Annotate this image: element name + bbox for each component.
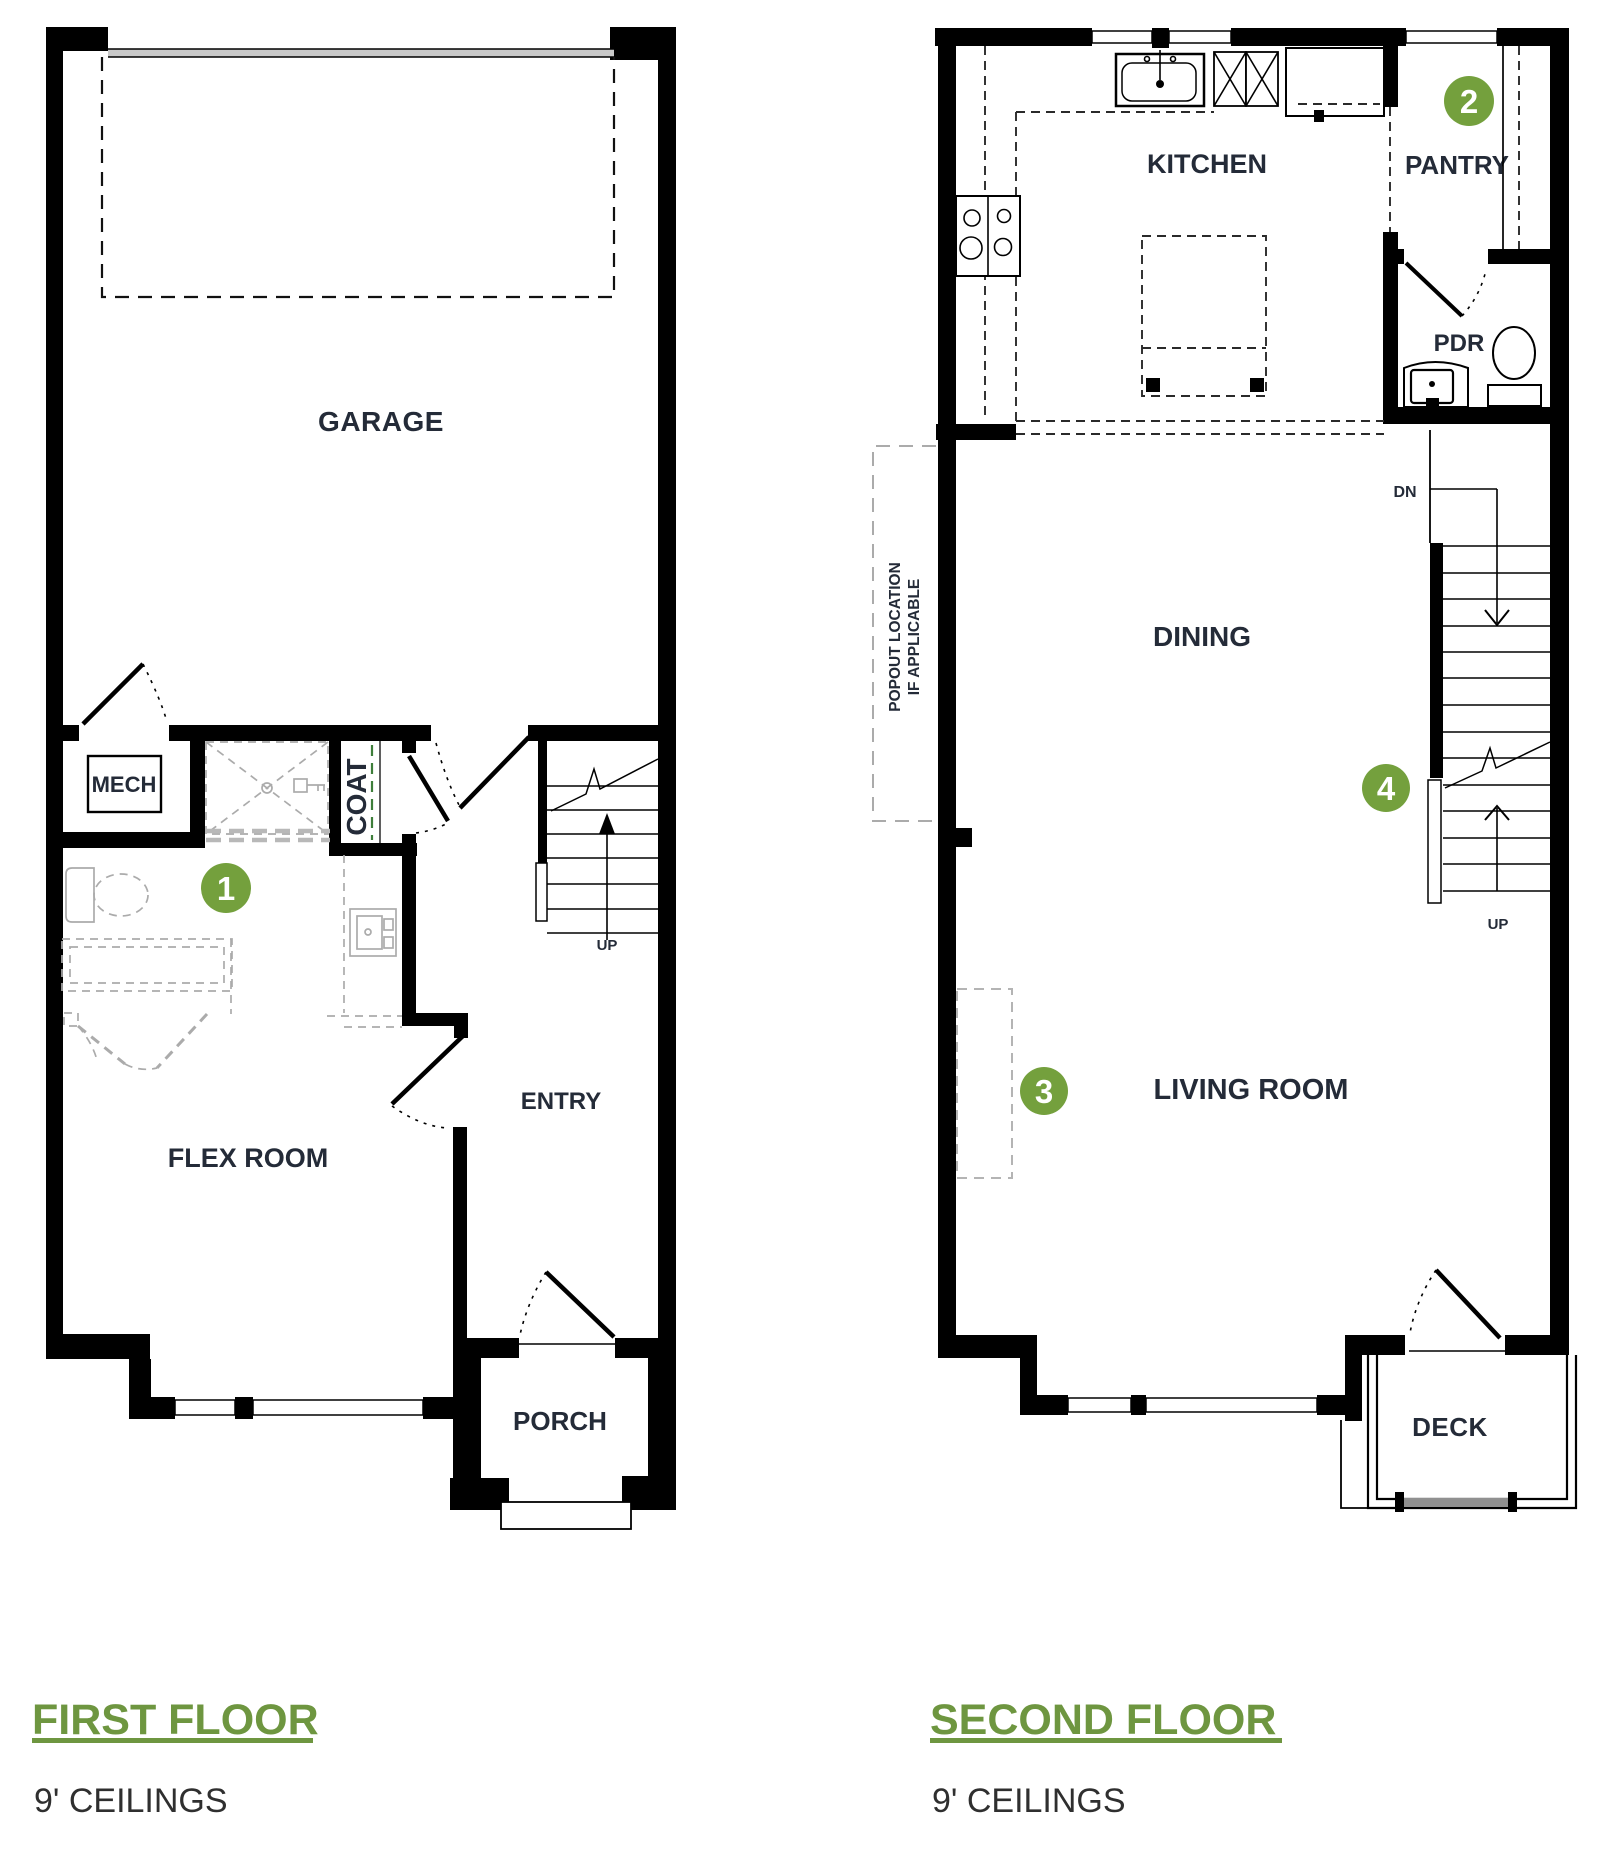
svg-text:UP: UP	[1488, 916, 1509, 933]
svg-text:PORCH: PORCH	[513, 1406, 607, 1436]
svg-text:PANTRY: PANTRY	[1405, 150, 1509, 180]
svg-text:FIRST FLOOR: FIRST FLOOR	[32, 1696, 319, 1744]
svg-text:2: 2	[1460, 83, 1478, 120]
svg-text:FLEX ROOM: FLEX ROOM	[168, 1143, 329, 1173]
svg-text:DN: DN	[1393, 484, 1416, 501]
svg-text:UP: UP	[597, 937, 618, 954]
svg-text:SECOND FLOOR: SECOND FLOOR	[930, 1696, 1276, 1744]
svg-text:PDR: PDR	[1434, 330, 1485, 357]
svg-text:POPOUT LOCATION: POPOUT LOCATION	[887, 562, 904, 712]
svg-text:IF APPLICABLE: IF APPLICABLE	[906, 579, 923, 696]
svg-text:3: 3	[1035, 1073, 1053, 1110]
svg-text:DECK: DECK	[1412, 1412, 1488, 1442]
svg-text:4: 4	[1377, 770, 1396, 807]
svg-text:1: 1	[217, 870, 235, 907]
svg-text:LIVING ROOM: LIVING ROOM	[1154, 1074, 1349, 1106]
svg-text:ENTRY: ENTRY	[521, 1088, 601, 1115]
svg-text:9' CEILINGS: 9' CEILINGS	[932, 1782, 1126, 1820]
svg-text:KITCHEN: KITCHEN	[1147, 149, 1267, 179]
svg-text:GARAGE: GARAGE	[318, 406, 444, 437]
svg-text:DINING: DINING	[1153, 621, 1251, 652]
svg-text:COAT: COAT	[341, 758, 372, 835]
svg-text:MECH: MECH	[92, 772, 157, 797]
svg-text:9' CEILINGS: 9' CEILINGS	[34, 1782, 228, 1820]
